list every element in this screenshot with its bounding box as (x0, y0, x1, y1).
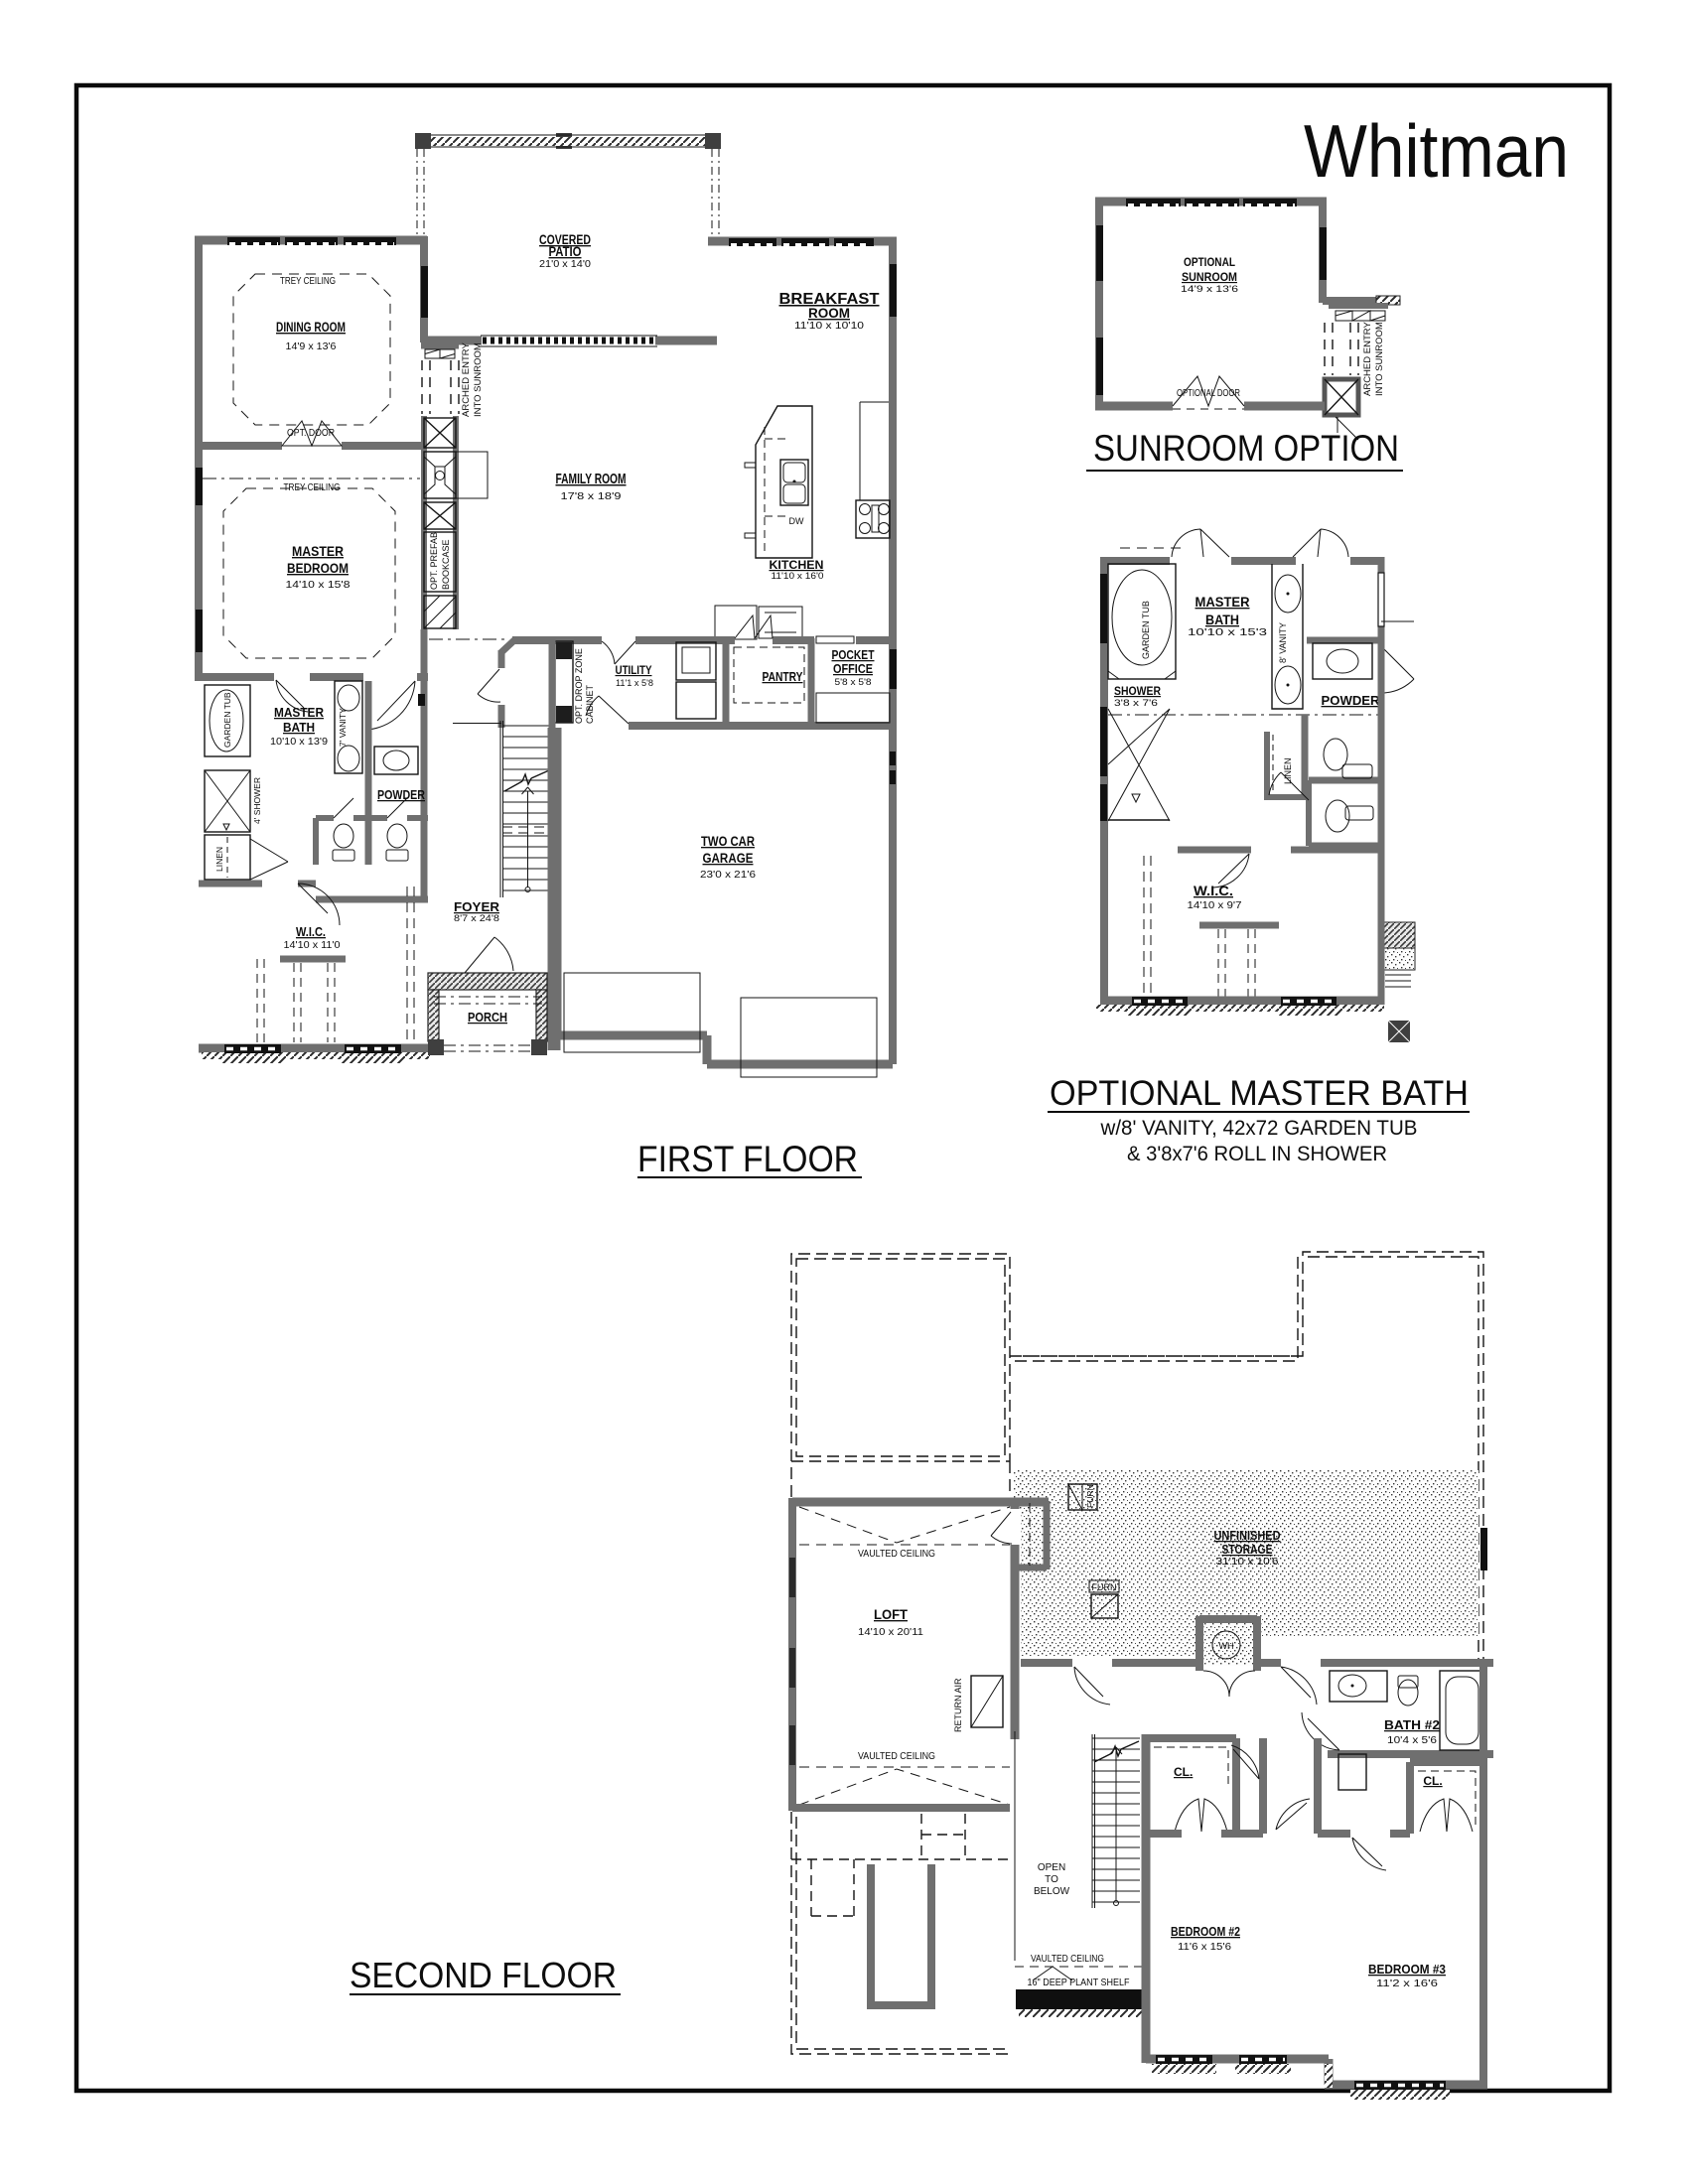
svg-text:POCKET: POCKET (832, 648, 875, 662)
svg-text:MASTER: MASTER (292, 543, 344, 559)
svg-text:31'10 x 10'6: 31'10 x 10'6 (1216, 1557, 1280, 1568)
svg-text:& 3'8x7'6 ROLL IN SHOWER: & 3'8x7'6 ROLL IN SHOWER (1127, 1143, 1387, 1165)
svg-text:BEDROOM #3: BEDROOM #3 (1368, 1962, 1446, 1977)
svg-text:W.I.C.: W.I.C. (296, 924, 326, 939)
svg-text:TREY CEILING: TREY CEILING (280, 276, 336, 287)
svg-text:FURN: FURN (1085, 1484, 1095, 1508)
svg-text:TREY CEILING: TREY CEILING (284, 482, 341, 493)
svg-text:SHOWER: SHOWER (1114, 684, 1161, 698)
svg-text:10'10 x 15'3: 10'10 x 15'3 (1188, 627, 1268, 638)
svg-text:CL.: CL. (1174, 1765, 1193, 1779)
svg-text:STORAGE: STORAGE (1222, 1542, 1273, 1557)
svg-text:VAULTED CEILING: VAULTED CEILING (858, 1549, 935, 1560)
svg-text:14'10 x 11'0: 14'10 x 11'0 (284, 940, 341, 951)
svg-text:SUNROOM: SUNROOM (1182, 272, 1237, 284)
svg-text:BOOKCASE: BOOKCASE (441, 539, 451, 590)
svg-text:DW: DW (789, 516, 804, 526)
svg-text:UNFINISHED: UNFINISHED (1214, 1528, 1281, 1543)
svg-text:OPT. DROP ZONE: OPT. DROP ZONE (574, 648, 584, 724)
svg-text:BATH: BATH (1205, 613, 1239, 627)
svg-text:FAMILY ROOM: FAMILY ROOM (556, 472, 627, 487)
svg-text:14'10 x 20'11: 14'10 x 20'11 (858, 1627, 923, 1638)
svg-text:CL.: CL. (1423, 1774, 1442, 1788)
svg-text:OPEN: OPEN (1038, 1862, 1065, 1873)
svg-text:PORCH: PORCH (468, 1011, 507, 1024)
svg-text:21'0 x 14'0: 21'0 x 14'0 (539, 258, 591, 270)
svg-text:w/8' VANITY, 42x72 GARDEN TUB: w/8' VANITY, 42x72 GARDEN TUB (1100, 1117, 1418, 1140)
svg-text:INTO SUNROOM: INTO SUNROOM (1374, 322, 1385, 396)
svg-text:10'4 x 5'6: 10'4 x 5'6 (1387, 1735, 1438, 1746)
svg-text:VAULTED CEILING: VAULTED CEILING (1031, 1954, 1104, 1965)
svg-text:ARCHED ENTRY: ARCHED ENTRY (1362, 322, 1373, 396)
svg-text:11'1 x 5'8: 11'1 x 5'8 (616, 678, 653, 689)
svg-text:BATH: BATH (283, 720, 315, 735)
svg-text:KITCHEN: KITCHEN (770, 558, 824, 572)
svg-text:TO: TO (1045, 1874, 1058, 1885)
svg-text:UTILITY: UTILITY (616, 665, 652, 677)
svg-text:LINEN: LINEN (214, 847, 224, 872)
svg-text:POWDER: POWDER (1322, 693, 1381, 708)
svg-text:MASTER: MASTER (1196, 595, 1250, 610)
svg-text:Whitman: Whitman (1304, 109, 1569, 193)
svg-text:OPT. DOOR: OPT. DOOR (287, 427, 335, 439)
svg-text:VAULTED CEILING: VAULTED CEILING (858, 1751, 935, 1762)
svg-text:5'8 x 5'8: 5'8 x 5'8 (835, 677, 872, 688)
svg-text:23'0 x 21'6: 23'0 x 21'6 (700, 869, 756, 881)
svg-text:10'10 x 13'9: 10'10 x 13'9 (270, 737, 328, 748)
svg-text:OPTIONAL: OPTIONAL (1184, 257, 1235, 269)
svg-text:DINING ROOM: DINING ROOM (276, 319, 346, 335)
svg-text:ROOM: ROOM (808, 305, 850, 321)
svg-text:FOYER: FOYER (454, 900, 499, 914)
svg-text:16" DEEP PLANT SHELF: 16" DEEP PLANT SHELF (1028, 1978, 1130, 1988)
svg-text:ARCHED ENTRY: ARCHED ENTRY (461, 342, 472, 417)
svg-text:OFFICE: OFFICE (833, 662, 873, 676)
svg-text:4' SHOWER: 4' SHOWER (252, 777, 262, 824)
svg-text:W.I.C.: W.I.C. (1194, 884, 1233, 898)
svg-text:11'2 x 16'6: 11'2 x 16'6 (1376, 1979, 1439, 1989)
svg-text:BELOW: BELOW (1034, 1886, 1070, 1897)
svg-text:POWDER: POWDER (377, 788, 425, 802)
svg-text:PANTRY: PANTRY (763, 670, 804, 684)
svg-text:LINEN: LINEN (1283, 757, 1293, 784)
svg-text:BATH #2: BATH #2 (1384, 1718, 1440, 1732)
svg-text:SUNROOM OPTION: SUNROOM OPTION (1093, 428, 1399, 469)
svg-text:GARDEN TUB: GARDEN TUB (222, 692, 232, 748)
svg-text:7' VANITY: 7' VANITY (338, 708, 348, 747)
svg-text:8' VANITY: 8' VANITY (1278, 622, 1288, 663)
svg-text:14'10 x 9'7: 14'10 x 9'7 (1188, 900, 1242, 911)
svg-text:14'10 x 15'8: 14'10 x 15'8 (286, 579, 351, 591)
svg-text:MASTER: MASTER (274, 705, 325, 720)
svg-text:3'8 x 7'6: 3'8 x 7'6 (1114, 698, 1158, 709)
svg-text:TWO CAR: TWO CAR (701, 834, 755, 849)
svg-text:8'7 x 24'8: 8'7 x 24'8 (454, 913, 499, 924)
svg-text:RETURN AIR: RETURN AIR (953, 1678, 963, 1732)
svg-text:GARAGE: GARAGE (703, 851, 754, 866)
svg-text:INTO SUNROOM: INTO SUNROOM (473, 342, 484, 417)
svg-text:11'6 x 15'6: 11'6 x 15'6 (1178, 1942, 1231, 1953)
svg-text:11'10 x 10'10: 11'10 x 10'10 (794, 320, 864, 332)
svg-text:11'10 x 16'0: 11'10 x 16'0 (772, 571, 824, 582)
svg-text:SECOND FLOOR: SECOND FLOOR (350, 1955, 617, 1995)
svg-text:CABINET: CABINET (585, 684, 595, 724)
svg-text:FURN: FURN (1092, 1582, 1117, 1592)
svg-text:BEDROOM: BEDROOM (287, 560, 349, 576)
svg-text:GARDEN TUB: GARDEN TUB (1141, 601, 1151, 659)
svg-text:BEDROOM #2: BEDROOM #2 (1171, 1924, 1240, 1939)
svg-text:OPTIONAL DOOR: OPTIONAL DOOR (1177, 388, 1240, 399)
svg-text:14'9 x 13'6: 14'9 x 13'6 (286, 341, 337, 352)
svg-text:OPTIONAL MASTER BATH: OPTIONAL MASTER BATH (1050, 1074, 1469, 1113)
svg-text:17'8 x 18'9: 17'8 x 18'9 (561, 490, 622, 502)
svg-text:LOFT: LOFT (874, 1607, 909, 1622)
svg-text:FIRST FLOOR: FIRST FLOOR (637, 1139, 858, 1179)
svg-text:WH: WH (1219, 1641, 1234, 1651)
svg-text:OPT. PREFAB: OPT. PREFAB (429, 532, 439, 590)
svg-text:PATIO: PATIO (549, 244, 582, 259)
svg-text:14'9 x 13'6: 14'9 x 13'6 (1181, 284, 1238, 295)
